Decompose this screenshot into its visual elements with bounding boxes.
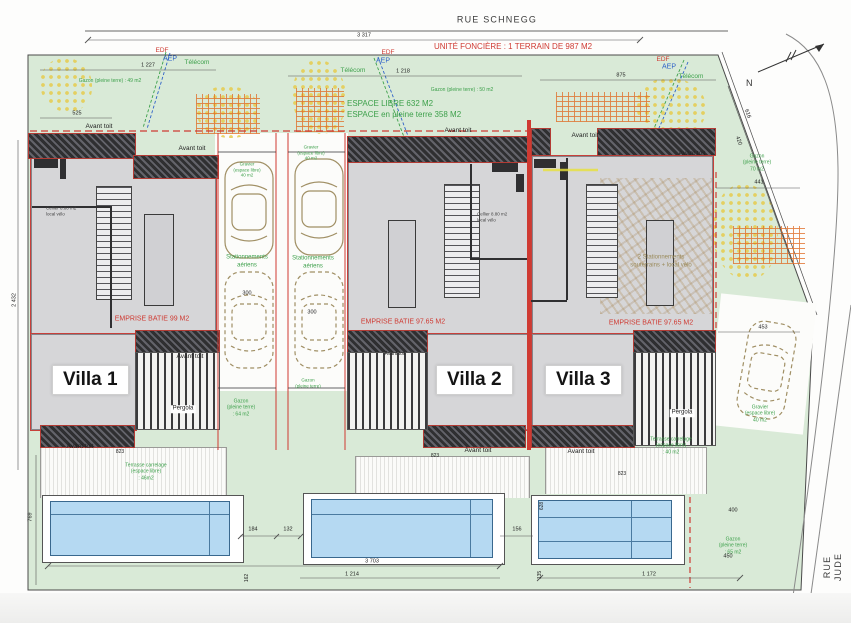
pool2-water (311, 499, 493, 558)
hedge-hatch-icon (733, 226, 805, 264)
pool-lane-line (209, 502, 210, 555)
villa1-wall (110, 206, 112, 328)
pool-lane-line (539, 541, 671, 542)
pool3-water (538, 500, 672, 559)
pool1-water (50, 501, 230, 556)
villa1-fixture (60, 159, 66, 179)
villa3-wall (531, 300, 567, 302)
villa3-fixture (534, 159, 556, 168)
villa1-island (144, 214, 174, 306)
villa3-stairs-icon (586, 184, 618, 298)
roof-band (133, 155, 219, 179)
villa3-fixture (560, 162, 567, 180)
hedge-hatch-icon (556, 92, 650, 122)
villa1-wall (32, 206, 112, 208)
villa2-wall (470, 258, 528, 260)
parking-corridor-ground (215, 133, 348, 391)
roof-band (347, 136, 530, 163)
villa2-wall (470, 164, 472, 259)
roof-band (597, 128, 716, 156)
villa2-stairs-icon (444, 184, 480, 298)
villa2-name-badge: Villa 2 (436, 365, 513, 395)
pool-lane-line (51, 514, 229, 515)
roof-band (28, 133, 136, 159)
villa1-fixture (34, 159, 58, 168)
villa3-name-badge: Villa 3 (545, 365, 622, 395)
roof-band (347, 330, 428, 354)
villa2-island (388, 220, 416, 308)
villa2-fixture (492, 163, 518, 172)
hedge-hatch-icon (296, 88, 344, 132)
pool2-frame (303, 493, 505, 565)
villa1-stairs-icon (96, 186, 132, 300)
north-letter: N (746, 78, 753, 88)
gravel-patch-right (707, 293, 816, 434)
pool-lane-line (470, 500, 471, 557)
pergola-villa2 (347, 352, 428, 430)
pool-lane-line (312, 514, 492, 515)
tree-icon (40, 58, 92, 112)
north-arrow-icon: N (746, 44, 824, 88)
villa2-fixture (516, 174, 524, 192)
roof-band (531, 425, 635, 448)
pergola-villa3 (633, 352, 716, 446)
roof-band (40, 425, 135, 448)
terrace-villa2 (355, 456, 530, 498)
pool-lane-line (539, 517, 671, 518)
pool3-frame (531, 495, 685, 565)
site-plan-canvas: N (0, 0, 851, 623)
terrace-villa3 (545, 447, 707, 494)
villa2-building-upper (347, 160, 530, 337)
roof-band (531, 128, 551, 156)
terrace-villa1 (40, 447, 227, 498)
roof-band (633, 330, 716, 354)
hedge-hatch-icon (196, 94, 260, 134)
pool-lane-line (631, 501, 632, 558)
roof-band (135, 330, 220, 354)
villa1-name-badge: Villa 1 (52, 365, 129, 395)
villa3-island (646, 220, 674, 306)
pergola-villa1 (135, 352, 220, 430)
roof-band (423, 425, 526, 448)
scan-edge (0, 593, 851, 623)
pool1-frame (42, 495, 244, 563)
